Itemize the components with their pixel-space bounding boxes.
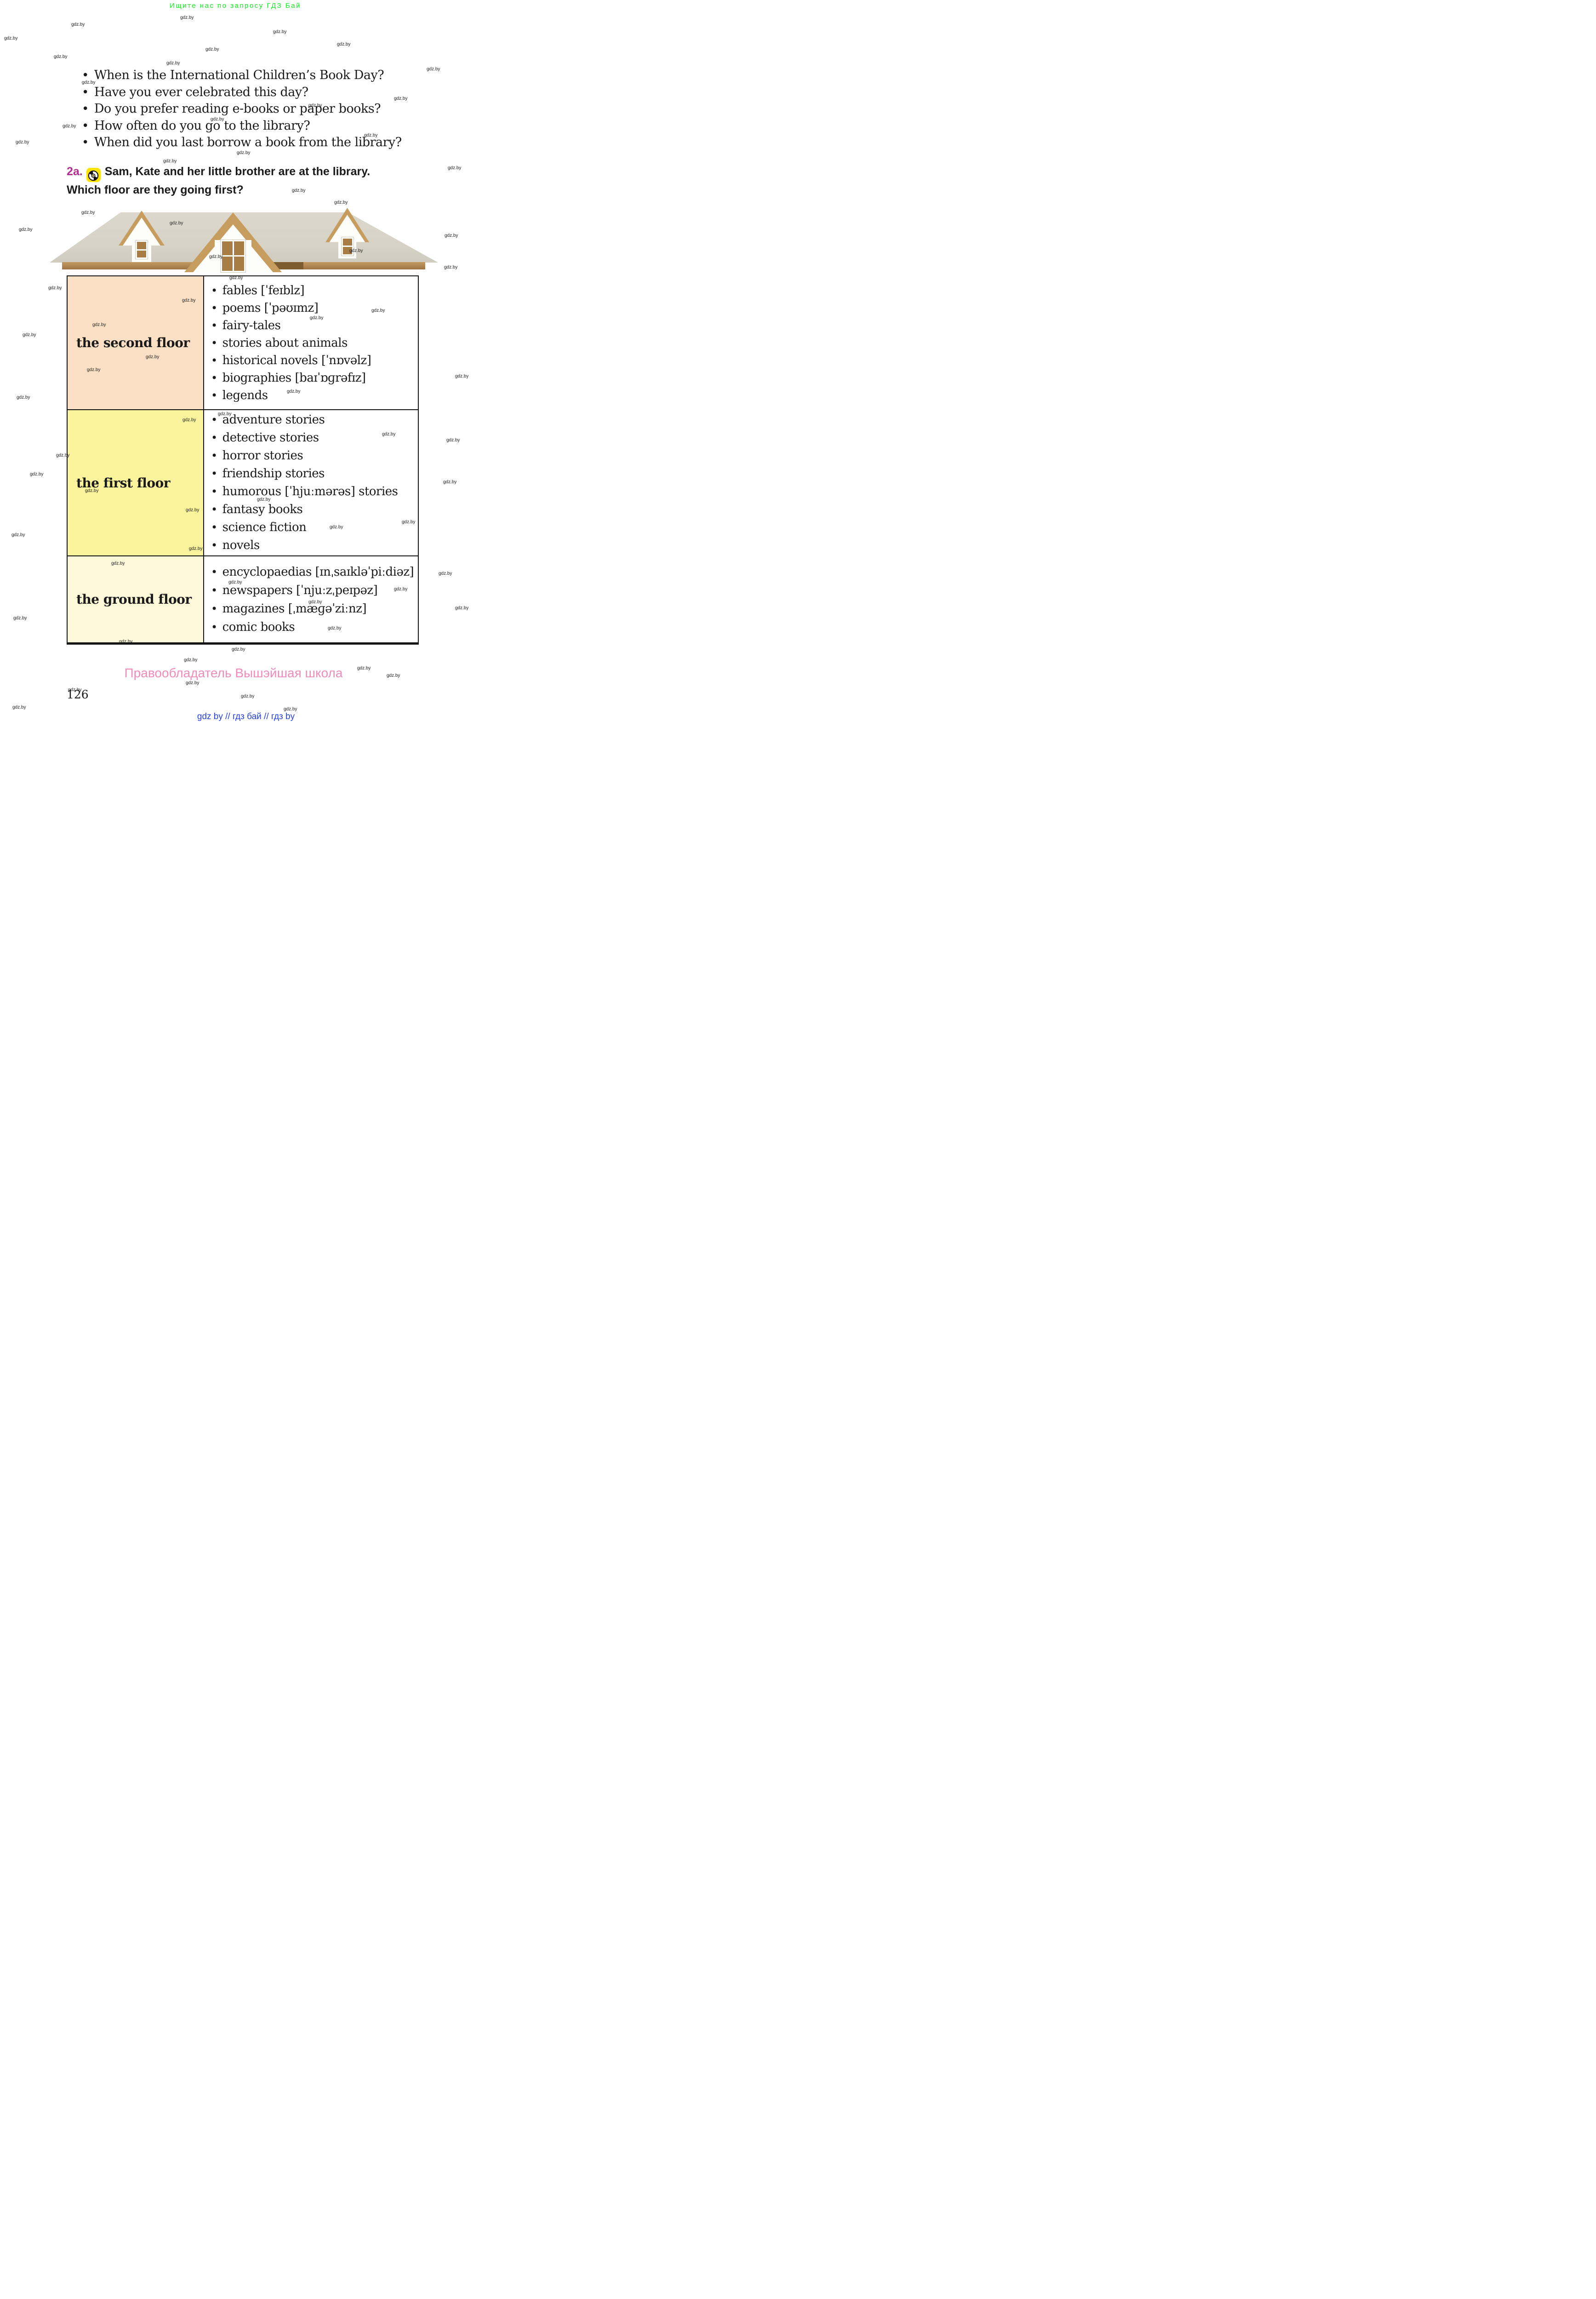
book-category-item: legends — [211, 387, 418, 404]
watermark: gdz.by — [455, 374, 468, 379]
watermark: gdz.by — [218, 412, 231, 417]
cd-icon — [86, 168, 101, 182]
book-category-item: fables [ˈfeɪblz] — [211, 282, 418, 299]
watermark: gdz.by — [63, 124, 76, 129]
watermark: gdz.by — [170, 221, 183, 226]
book-category-text: biographies [baɪˈɒɡrəfɪz] — [222, 369, 366, 387]
floor-label-ground: the ground floor — [68, 556, 204, 642]
watermark: gdz.by — [12, 705, 26, 710]
watermark: gdz.by — [287, 389, 300, 394]
watermark: gdz.by — [11, 532, 25, 538]
book-category-item: science fiction — [211, 519, 418, 537]
copyright-text: Правообладатель Вышэйшая школа — [125, 666, 343, 681]
watermark: gdz.by — [444, 265, 457, 270]
floor-row-second: the second floor fables [ˈfeɪblz] poems … — [68, 276, 418, 409]
book-category-item: fantasy books — [211, 501, 418, 519]
watermark: gdz.by — [180, 15, 194, 20]
watermark: gdz.by — [371, 308, 385, 313]
question-item: When did you last borrow a book from the… — [82, 134, 445, 151]
question-item: Have you ever celebrated this day? — [82, 84, 445, 101]
watermark: gdz.by — [205, 47, 219, 52]
watermark: gdz.by — [349, 248, 363, 253]
watermark: gdz.by — [448, 166, 461, 171]
watermark: gdz.by — [163, 159, 177, 164]
book-category-item: humorous [ˈhjuːmərəs] stories — [211, 483, 418, 501]
watermark: gdz.by — [257, 497, 270, 502]
watermark: gdz.by — [189, 546, 202, 551]
book-category-text: adventure stories — [222, 411, 325, 429]
watermark: gdz.by — [334, 200, 348, 205]
watermark: gdz.by — [182, 417, 196, 423]
watermark: gdz.by — [382, 432, 395, 437]
book-category-item: encyclopaedias [ɪnˌsaɪkləˈpiːdiəz] — [211, 563, 418, 581]
book-category-text: horror stories — [222, 447, 303, 465]
book-category-text: friendship stories — [222, 465, 325, 483]
question-text: Have you ever celebrated this day? — [94, 84, 308, 101]
watermark: gdz.by — [56, 453, 69, 458]
watermark: gdz.by — [71, 22, 85, 27]
book-category-text: legends — [222, 387, 268, 404]
watermark: gdz.by — [402, 520, 415, 525]
book-category-item: historical novels [ˈnɒvəlz] — [211, 352, 418, 369]
book-category-text: stories about animals — [222, 334, 348, 352]
book-category-text: humorous [ˈhjuːmərəs] stories — [222, 483, 398, 501]
watermark: gdz.by — [54, 54, 67, 59]
book-category-item: biographies [baɪˈɒɡrəfɪz] — [211, 369, 418, 387]
watermark: gdz.by — [87, 367, 100, 372]
watermark: gdz.by — [146, 355, 159, 360]
book-category-item: adventure stories — [211, 411, 418, 429]
book-category-text: detective stories — [222, 429, 319, 447]
watermark: gdz.by — [310, 315, 323, 320]
question-text: When is the International Children’s Boo… — [94, 67, 384, 84]
watermark: gdz.by — [455, 606, 468, 611]
watermark: gdz.by — [308, 103, 322, 108]
watermark: gdz.by — [16, 140, 29, 145]
textbook-page: { "banner": { "text": "Ищите нас по запр… — [0, 0, 471, 729]
book-category-text: poems [ˈpəʊɪmz] — [222, 299, 319, 317]
dormer-center — [184, 212, 282, 272]
book-category-text: historical novels [ˈnɒvəlz] — [222, 352, 371, 369]
book-category-text: fables [ˈfeɪblz] — [222, 282, 305, 299]
dormer-window-icon — [136, 240, 148, 259]
dormer-left — [119, 211, 165, 262]
questions-list: When is the International Children’s Boo… — [82, 67, 445, 151]
book-category-item: horror stories — [211, 447, 418, 465]
watermark: gdz.by — [186, 681, 199, 686]
watermark: gdz.by — [23, 332, 36, 337]
watermark: gdz.by — [211, 117, 224, 122]
library-floors-table: the second floor fables [ˈfeɪblz] poems … — [67, 275, 419, 645]
watermark: gdz.by — [184, 658, 197, 663]
watermark: gdz.by — [387, 673, 400, 678]
watermark: gdz.by — [209, 254, 222, 259]
book-category-item: poems [ˈpəʊɪmz] — [211, 299, 418, 317]
watermark: gdz.by — [4, 36, 17, 41]
watermark: gdz.by — [30, 472, 43, 477]
watermark: gdz.by — [19, 227, 32, 232]
floor-books-second: fables [ˈfeɪblz] poems [ˈpəʊɪmz] fairy-t… — [204, 276, 418, 409]
watermark: gdz.by — [357, 666, 370, 671]
watermark: gdz.by — [328, 626, 341, 631]
watermark: gdz.by — [394, 587, 407, 592]
watermark: gdz.by — [308, 600, 322, 605]
floor-label-first: the first floor — [68, 410, 204, 555]
book-category-item: friendship stories — [211, 465, 418, 483]
exercise-heading: 2a. Sam, Kate and her little brother are… — [67, 164, 434, 198]
watermark: gdz.by — [364, 133, 377, 138]
watermark: gdz.by — [446, 438, 460, 443]
watermark: gdz.by — [330, 525, 343, 530]
watermark: gdz.by — [166, 61, 180, 66]
book-category-text: newspapers [ˈnjuːzˌpeɪpəz] — [222, 581, 378, 600]
watermark: gdz.by — [427, 67, 440, 72]
footer-links[interactable]: gdz by // гдз бай // гдз by — [197, 712, 295, 722]
exercise-text-line2: Which floor are they going first? — [67, 183, 244, 196]
floor-row-ground: the ground floor encyclopaedias [ɪnˌsaɪk… — [68, 555, 418, 642]
watermark: gdz.by — [68, 687, 81, 692]
book-category-text: fantasy books — [222, 501, 303, 519]
book-category-text: novels — [222, 537, 260, 555]
watermark: gdz.by — [85, 488, 98, 493]
watermark: gdz.by — [241, 694, 254, 699]
watermark: gdz.by — [81, 210, 95, 215]
exercise-text-line1: Sam, Kate and her little brother are at … — [105, 165, 370, 178]
watermark: gdz.by — [439, 571, 452, 576]
question-text: When did you last borrow a book from the… — [94, 134, 402, 151]
book-category-text: comic books — [222, 618, 295, 636]
floor-row-first: the first floor adventure stories detect… — [68, 409, 418, 555]
book-category-item: comic books — [211, 618, 418, 636]
watermark: gdz.by — [228, 580, 242, 585]
top-banner: Ищите нас по запросу ГДЗ Бай — [0, 2, 471, 10]
watermark: gdz.by — [292, 188, 305, 193]
book-category-text: magazines [ˌmæɡəˈziːnz] — [222, 600, 366, 618]
book-category-item: novels — [211, 537, 418, 555]
watermark: gdz.by — [182, 298, 195, 303]
library-roof-illustration — [50, 208, 438, 272]
watermark: gdz.by — [17, 395, 30, 400]
question-text: Do you prefer reading e-books or paper b… — [94, 101, 381, 118]
watermark: gdz.by — [443, 480, 456, 485]
watermark: gdz.by — [394, 96, 407, 101]
question-item: How often do you go to the library? — [82, 118, 445, 135]
watermark: gdz.by — [284, 707, 297, 712]
question-item: Do you prefer reading e-books or paper b… — [82, 101, 445, 118]
book-category-text: encyclopaedias [ɪnˌsaɪkləˈpiːdiəz] — [222, 563, 414, 581]
watermark: gdz.by — [82, 80, 95, 85]
exercise-number: 2a. — [67, 165, 83, 178]
watermark: gdz.by — [92, 322, 106, 327]
book-category-text: fairy-tales — [222, 317, 281, 334]
dormer-window-icon — [221, 240, 245, 272]
watermark: gdz.by — [119, 639, 132, 644]
watermark: gdz.by — [273, 29, 286, 34]
question-item: When is the International Children’s Boo… — [82, 67, 445, 84]
book-category-item: stories about animals — [211, 334, 418, 352]
watermark: gdz.by — [111, 561, 125, 566]
watermark: gdz.by — [13, 616, 27, 621]
watermark: gdz.by — [237, 150, 250, 155]
question-text: How often do you go to the library? — [94, 118, 310, 135]
watermark: gdz.by — [445, 233, 458, 238]
watermark: gdz.by — [186, 508, 199, 513]
book-category-item: newspapers [ˈnjuːzˌpeɪpəz] — [211, 581, 418, 600]
watermark: gdz.by — [229, 275, 243, 280]
floor-label-second: the second floor — [68, 276, 204, 409]
book-category-text: science fiction — [222, 519, 307, 537]
watermark: gdz.by — [48, 286, 62, 291]
watermark: gdz.by — [337, 42, 350, 47]
watermark: gdz.by — [232, 647, 245, 652]
